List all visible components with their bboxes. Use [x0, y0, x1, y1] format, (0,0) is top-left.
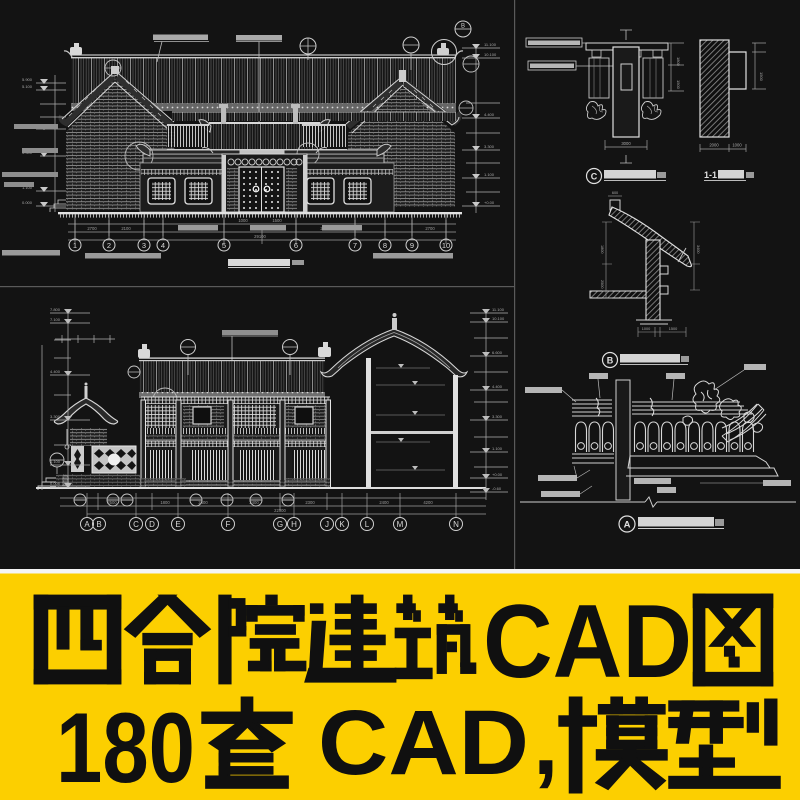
svg-text:+0.00: +0.00: [484, 200, 495, 205]
svg-text:1: 1: [73, 241, 77, 250]
svg-text:A: A: [84, 520, 90, 529]
svg-text:3000: 3000: [621, 141, 631, 146]
svg-text:D: D: [149, 520, 155, 529]
svg-text:180: 180: [56, 692, 195, 800]
svg-text:10: 10: [442, 241, 450, 250]
svg-text:1000: 1000: [238, 218, 248, 223]
svg-text:2500: 2500: [600, 280, 604, 288]
svg-text:-0.60: -0.60: [492, 486, 502, 491]
svg-text:1.100: 1.100: [484, 172, 495, 177]
svg-text:E: E: [175, 520, 180, 529]
svg-text:2700: 2700: [425, 226, 435, 231]
svg-text:8: 8: [383, 241, 387, 250]
svg-text:7.800: 7.800: [50, 307, 61, 312]
svg-text:CAD: CAD: [318, 692, 529, 794]
svg-text:4.400: 4.400: [484, 112, 495, 117]
svg-text:1.100: 1.100: [50, 459, 61, 464]
svg-text:,: ,: [533, 692, 559, 794]
svg-text:3400: 3400: [696, 245, 700, 253]
svg-text:4: 4: [161, 241, 165, 250]
svg-text:2400: 2400: [379, 500, 389, 505]
svg-text:11.100: 11.100: [492, 307, 505, 312]
svg-text:1000: 1000: [642, 327, 650, 331]
svg-text:J: J: [325, 520, 329, 529]
svg-text:1800: 1800: [676, 57, 681, 67]
svg-text:1800: 1800: [600, 245, 604, 253]
svg-text:N: N: [453, 520, 459, 529]
svg-text:+0.00: +0.00: [492, 472, 503, 477]
svg-text:2: 2: [107, 241, 111, 250]
svg-text:3.300: 3.300: [484, 144, 495, 149]
svg-text:5: 5: [222, 241, 226, 250]
svg-text:10.100: 10.100: [484, 52, 497, 57]
svg-text:L: L: [365, 520, 370, 529]
svg-text:5.900: 5.900: [22, 77, 33, 82]
svg-text:4.400: 4.400: [50, 369, 61, 374]
svg-text:G: G: [277, 520, 283, 529]
svg-text:22900: 22900: [274, 508, 286, 513]
svg-text:11.100: 11.100: [484, 42, 497, 47]
svg-text:4.400: 4.400: [492, 384, 503, 389]
svg-text:0.000: 0.000: [22, 200, 33, 205]
svg-text:1500: 1500: [759, 72, 764, 82]
svg-text:CAD: CAD: [483, 584, 692, 700]
svg-text:B: B: [96, 520, 101, 529]
svg-text:B: B: [461, 24, 465, 30]
svg-text:1-1: 1-1: [704, 170, 717, 180]
svg-text:H: H: [291, 520, 297, 529]
svg-text:1500: 1500: [676, 80, 681, 90]
svg-text:2100: 2100: [121, 226, 131, 231]
svg-text:K: K: [339, 520, 345, 529]
svg-text:1500: 1500: [669, 327, 677, 331]
svg-text:M: M: [397, 520, 404, 529]
svg-text:0.000: 0.000: [50, 481, 61, 486]
svg-text:9: 9: [410, 241, 414, 250]
svg-text:1.100: 1.100: [492, 446, 503, 451]
svg-text:2000: 2000: [709, 143, 719, 148]
svg-text:2300: 2300: [305, 500, 315, 505]
svg-text:600: 600: [612, 191, 618, 195]
svg-text:A: A: [624, 520, 631, 531]
svg-text:10.100: 10.100: [492, 316, 505, 321]
svg-text:1800: 1800: [160, 500, 170, 505]
svg-text:F: F: [226, 520, 231, 529]
svg-text:B: B: [607, 356, 614, 366]
svg-text:2700: 2700: [87, 226, 97, 231]
svg-text:7.100: 7.100: [50, 317, 61, 322]
svg-text:4200: 4200: [423, 500, 433, 505]
svg-text:29100: 29100: [254, 234, 266, 239]
svg-text:6: 6: [294, 241, 298, 250]
svg-text:7: 7: [353, 241, 357, 250]
svg-text:3: 3: [142, 241, 146, 250]
svg-text:3.300: 3.300: [50, 414, 61, 419]
svg-text:1000: 1000: [732, 143, 742, 148]
svg-text:5.100: 5.100: [22, 84, 33, 89]
svg-text:C: C: [133, 520, 139, 529]
svg-text:1500: 1500: [272, 218, 282, 223]
svg-text:3.300: 3.300: [492, 414, 503, 419]
svg-text:6.600: 6.600: [492, 350, 503, 355]
svg-text:C: C: [591, 172, 598, 182]
